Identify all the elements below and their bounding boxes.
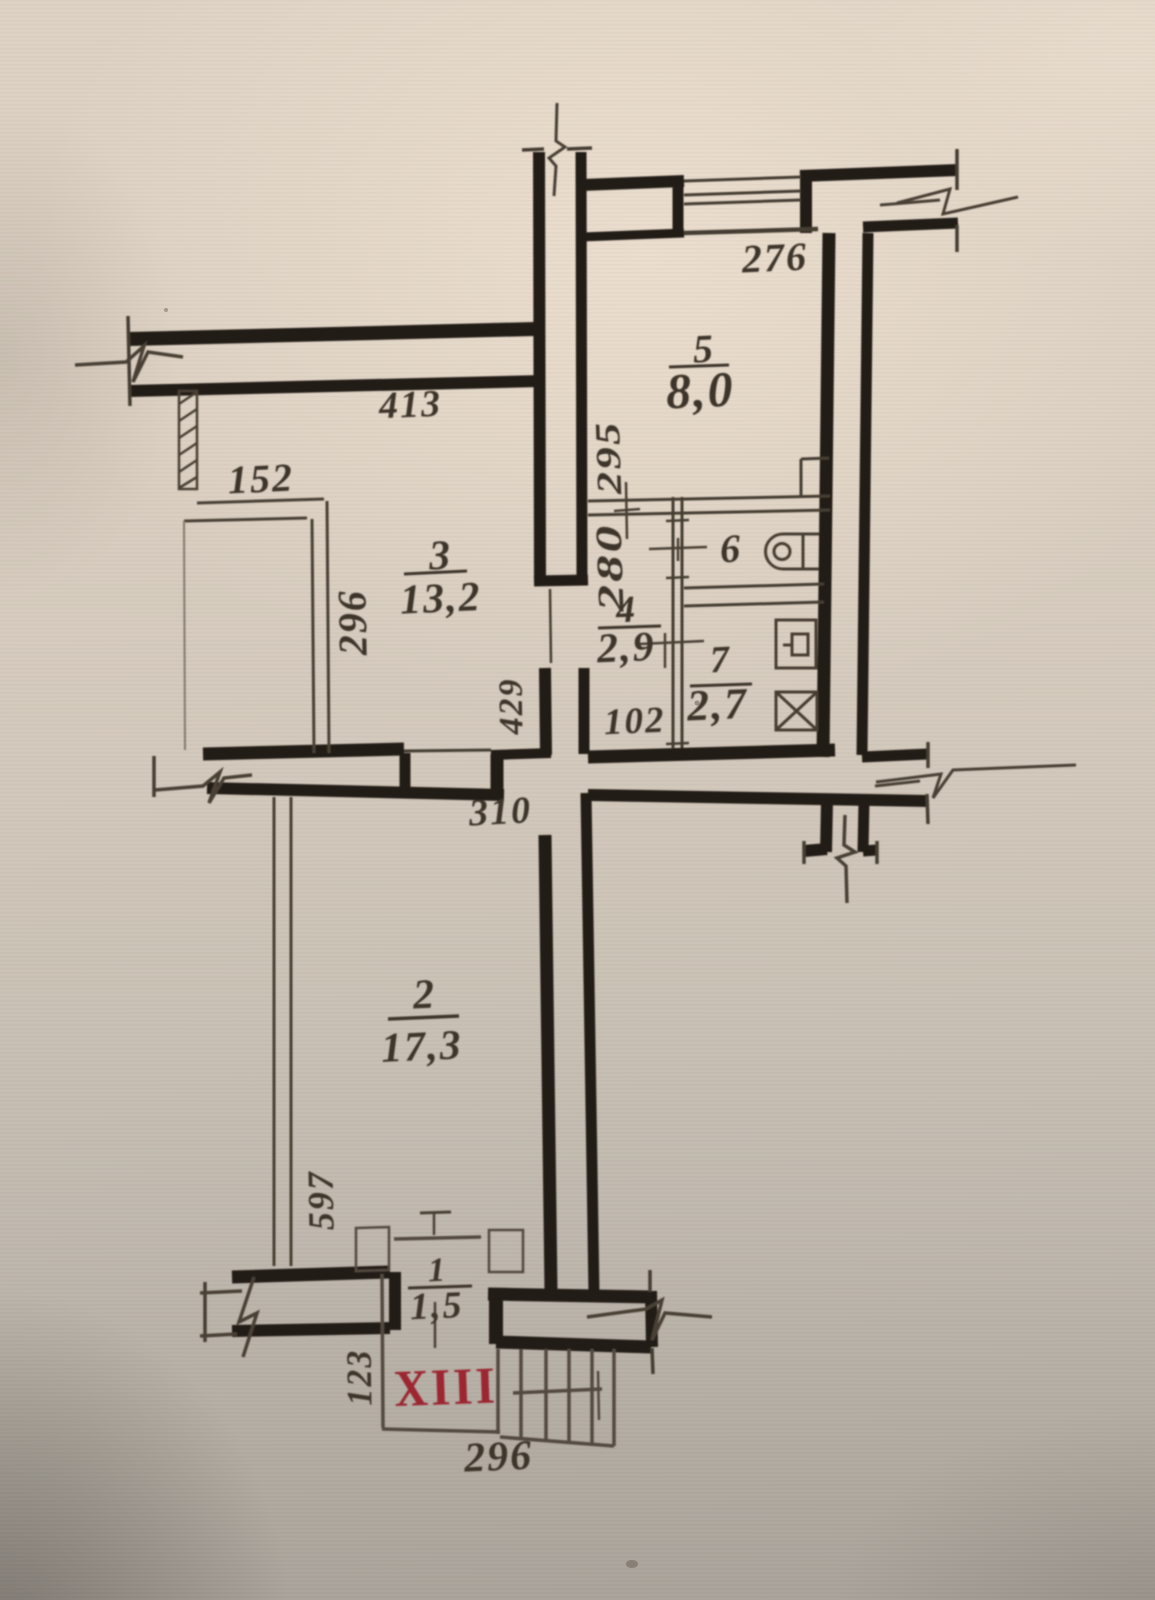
svg-text:123: 123 bbox=[339, 1348, 380, 1406]
svg-text:1,5: 1,5 bbox=[409, 1284, 464, 1328]
svg-text:7: 7 bbox=[709, 639, 732, 682]
svg-text:429: 429 bbox=[493, 677, 531, 736]
svg-text:XIII: XIII bbox=[385, 1357, 502, 1418]
svg-text:597: 597 bbox=[300, 1170, 341, 1231]
svg-text:295: 295 bbox=[587, 420, 629, 496]
svg-text:2,7: 2,7 bbox=[685, 679, 749, 731]
svg-text:2,9: 2,9 bbox=[595, 624, 656, 673]
svg-text:296: 296 bbox=[329, 589, 376, 657]
svg-text:2: 2 bbox=[411, 972, 437, 1019]
svg-text:310: 310 bbox=[467, 789, 533, 834]
svg-text:102: 102 bbox=[603, 700, 666, 744]
svg-text:13,2: 13,2 bbox=[399, 574, 482, 624]
svg-text:276: 276 bbox=[740, 234, 809, 282]
svg-text:17,3: 17,3 bbox=[380, 1022, 463, 1072]
svg-text:413: 413 bbox=[377, 383, 443, 428]
svg-text:296: 296 bbox=[462, 1433, 534, 1482]
svg-text:8,0: 8,0 bbox=[665, 361, 736, 420]
svg-text:6: 6 bbox=[719, 525, 743, 571]
svg-text:1: 1 bbox=[427, 1252, 448, 1290]
svg-text:152: 152 bbox=[227, 455, 295, 503]
